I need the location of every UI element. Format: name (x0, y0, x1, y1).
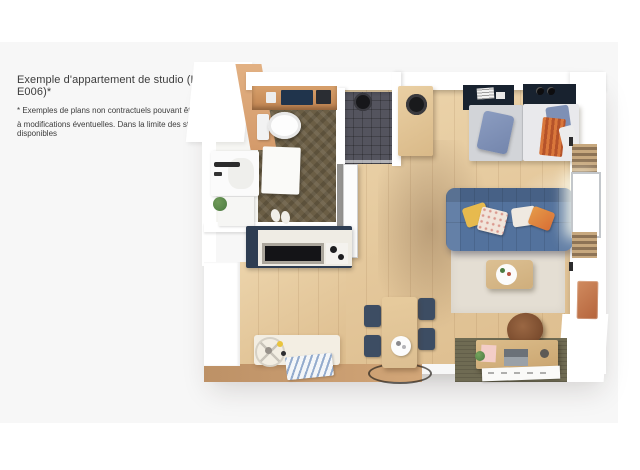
bench-dot-dark (281, 351, 286, 356)
plate-item-2 (402, 345, 406, 349)
floorplan-render (0, 0, 640, 470)
dining-chair-1 (364, 305, 381, 327)
toilet-bowl (268, 112, 301, 139)
bath-mat (261, 146, 301, 194)
plate-item-1 (396, 341, 401, 346)
dining-table (382, 297, 417, 368)
doormat (285, 353, 334, 381)
cooktop (265, 246, 321, 261)
laptop (504, 349, 528, 366)
headboard-knob-2 (547, 87, 555, 95)
tray-item-green (500, 268, 505, 273)
vase-black (406, 94, 427, 115)
wall-artwork (577, 281, 599, 319)
dining-plate (391, 336, 411, 356)
dining-chair-2 (364, 335, 381, 357)
desk-plant (475, 351, 485, 361)
bench-dot-yellow (277, 341, 283, 347)
faucet-handle (214, 172, 222, 176)
window-latch-top (569, 137, 573, 146)
hob (326, 243, 348, 264)
shelf-bottles (266, 92, 276, 103)
tray-item-red (507, 272, 511, 276)
wheel-hub (265, 347, 272, 354)
wall-cabinet-left (204, 262, 240, 366)
dining-chair-4 (418, 328, 435, 350)
desk-knob (540, 349, 549, 358)
hob-burner-1 (330, 246, 337, 253)
sofa-arm-left (446, 188, 460, 251)
paper-floor-marks (488, 372, 552, 374)
window-latch-bottom (569, 262, 573, 271)
shower-head (354, 93, 372, 111)
shower-sill (344, 160, 392, 163)
hob-burner-2 (338, 254, 344, 260)
headboard-tag (496, 92, 505, 99)
radiator-bottom (572, 232, 597, 258)
bath-plant (213, 197, 227, 211)
headboard-knob-1 (536, 87, 544, 95)
page: Exemple d'appartement de studio (Lot E00… (0, 0, 640, 470)
dining-chair-3 (418, 298, 435, 320)
headboard-books (477, 87, 495, 99)
faucet (214, 162, 240, 167)
shelf-appliance (281, 90, 313, 105)
window (571, 172, 601, 238)
radiator-top (572, 144, 597, 174)
shelf-box (316, 90, 331, 104)
